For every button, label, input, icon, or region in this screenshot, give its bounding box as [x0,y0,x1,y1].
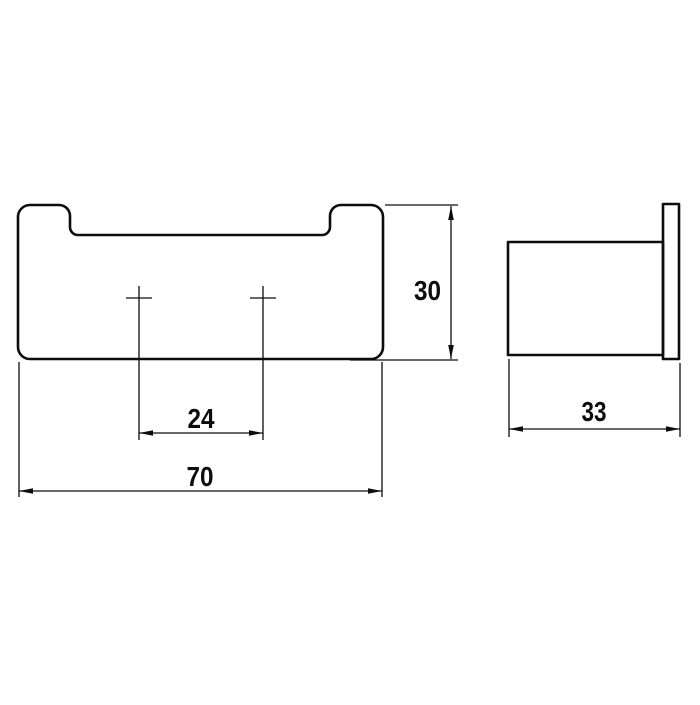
arrow-up [448,206,454,220]
dimension-hole-spacing: 24 [139,403,263,436]
side-view-body [508,242,663,355]
arrow-right [666,426,680,432]
dimension-label: 70 [187,461,214,492]
arrow-right [368,488,382,494]
front-view-outline [18,205,383,359]
arrow-right [249,430,263,436]
arrow-left [139,430,153,436]
arrow-down [448,345,454,359]
technical-drawing: 24 70 30 33 [0,0,700,700]
dimension-overall-depth: 33 [509,359,680,437]
drawing-canvas: 24 70 30 33 [0,0,700,700]
dimension-label: 24 [188,403,215,434]
dimension-label: 30 [414,275,441,306]
dimension-overall-height: 30 [350,205,458,360]
arrow-left [509,426,523,432]
mounting-hole-center-right [250,286,276,440]
side-view-wall-plate [663,204,679,359]
side-view [508,204,679,359]
arrow-left [19,488,33,494]
dimension-label: 33 [582,396,607,427]
mounting-hole-center-left [126,286,152,440]
